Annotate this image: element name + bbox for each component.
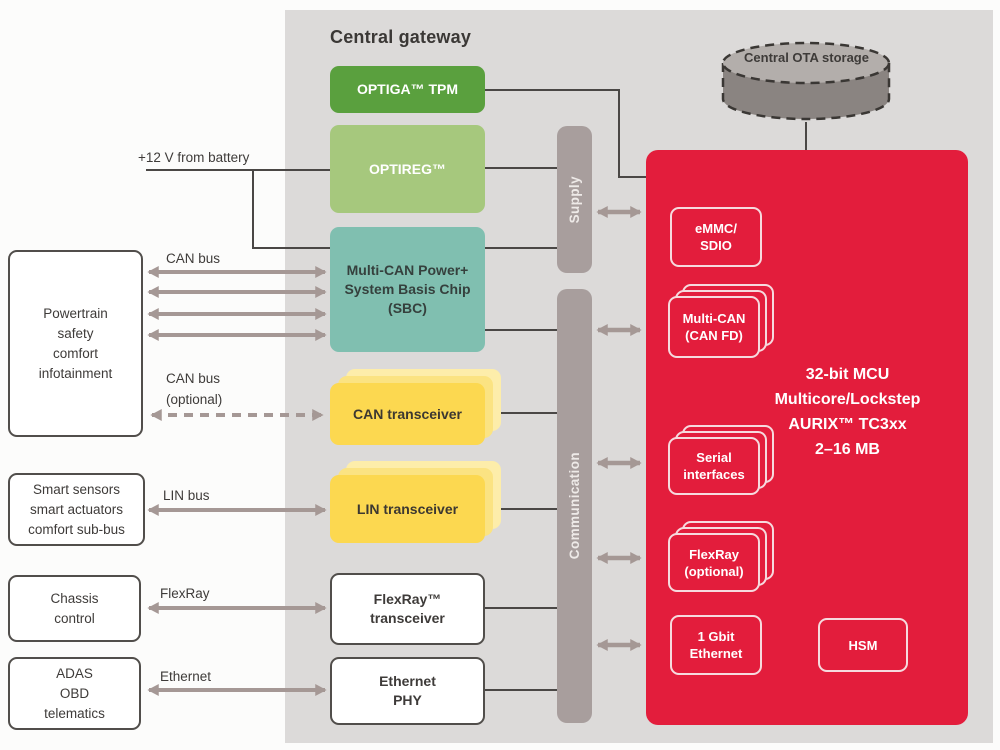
serial-interfaces-stack: Serial interfaces: [668, 425, 774, 495]
box-line: (optional): [684, 563, 743, 580]
mcu-title: 32-bit MCU Multicore/Lockstep AURIX™ TC3…: [745, 362, 950, 462]
box-line: (CAN FD): [685, 327, 743, 344]
communication-bar: Communication: [557, 289, 592, 723]
label-line: CAN bus: [166, 368, 222, 389]
hsm-box: HSM: [818, 618, 908, 672]
serial-interfaces-box: Serial interfaces: [668, 437, 760, 495]
multican-box: Multi-CAN (CAN FD): [668, 296, 760, 358]
node-line: comfort sub-bus: [28, 520, 125, 540]
mcu-title-line: 32-bit MCU: [745, 362, 950, 387]
box-line: SDIO: [700, 237, 732, 254]
label-ethernet: Ethernet: [160, 666, 211, 687]
node-line: infotainment: [39, 364, 113, 384]
mcu-title-line: AURIX™ TC3xx: [745, 412, 950, 437]
label-line: (optional): [166, 389, 222, 410]
supply-bar: Supply: [557, 126, 592, 273]
optiga-tpm-box: OPTIGA™ TPM: [330, 66, 485, 113]
ethernet-phy-box: Ethernet PHY: [330, 657, 485, 725]
box-line: FlexRay™: [374, 590, 442, 609]
optireg-box: OPTIREG™: [330, 125, 485, 213]
ota-storage-label: Central OTA storage: [723, 50, 890, 65]
node-powertrain: Powertrain safety comfort infotainment: [8, 250, 143, 437]
node-line: OBD: [60, 684, 89, 704]
node-line: control: [54, 609, 95, 629]
sbc-line: Multi-CAN Power+: [347, 261, 469, 280]
multican-stack: Multi-CAN (CAN FD): [668, 284, 774, 358]
box-line: interfaces: [683, 466, 744, 483]
box-line: 1 Gbit: [698, 628, 735, 645]
node-line: safety: [57, 324, 93, 344]
sbc-line: (SBC): [388, 299, 427, 318]
supply-bar-label: Supply: [567, 176, 582, 223]
can-transceiver-stack: CAN transceiver: [330, 369, 501, 445]
label-lin-bus: LIN bus: [163, 485, 210, 506]
flexray-transceiver-box: FlexRay™ transceiver: [330, 573, 485, 645]
node-line: Smart sensors: [33, 480, 120, 500]
box-line: PHY: [393, 691, 422, 710]
wire-battery-sbc: [253, 170, 330, 248]
sbc-box: Multi-CAN Power+ System Basis Chip (SBC): [330, 227, 485, 352]
node-adas: ADAS OBD telematics: [8, 657, 141, 730]
box-line: Serial: [696, 449, 731, 466]
box-line: Multi-CAN: [683, 310, 746, 327]
mcu-title-line: Multicore/Lockstep: [745, 387, 950, 412]
box-line: Ethernet: [379, 672, 436, 691]
mcu-title-line: 2–16 MB: [745, 437, 950, 462]
label-flexray: FlexRay: [160, 583, 210, 604]
box-line: Ethernet: [690, 645, 743, 662]
communication-bar-label: Communication: [567, 452, 582, 559]
label-battery: +12 V from battery: [138, 147, 249, 168]
box-line: eMMC/: [695, 220, 737, 237]
box-line: FlexRay: [689, 546, 739, 563]
node-smart-sensors: Smart sensors smart actuators comfort su…: [8, 473, 145, 546]
sbc-line: System Basis Chip: [344, 280, 470, 299]
box-line: transceiver: [370, 609, 445, 628]
node-line: Powertrain: [43, 304, 108, 324]
lin-transceiver-box: LIN transceiver: [330, 475, 485, 543]
flexray-optional-box: FlexRay (optional): [668, 533, 760, 592]
label-can-bus: CAN bus: [166, 248, 220, 269]
can-transceiver-box: CAN transceiver: [330, 383, 485, 445]
label-can-bus-optional: CAN bus (optional): [166, 368, 222, 410]
node-line: telematics: [44, 704, 105, 724]
flexray-optional-stack: FlexRay (optional): [668, 521, 774, 592]
emmc-sdio-box: eMMC/ SDIO: [670, 207, 762, 267]
node-line: Chassis: [50, 589, 98, 609]
node-line: ADAS: [56, 664, 93, 684]
node-line: smart actuators: [30, 500, 123, 520]
node-line: comfort: [53, 344, 98, 364]
node-chassis-control: Chassis control: [8, 575, 141, 642]
gbit-ethernet-box: 1 Gbit Ethernet: [670, 615, 762, 675]
lin-transceiver-stack: LIN transceiver: [330, 461, 501, 543]
